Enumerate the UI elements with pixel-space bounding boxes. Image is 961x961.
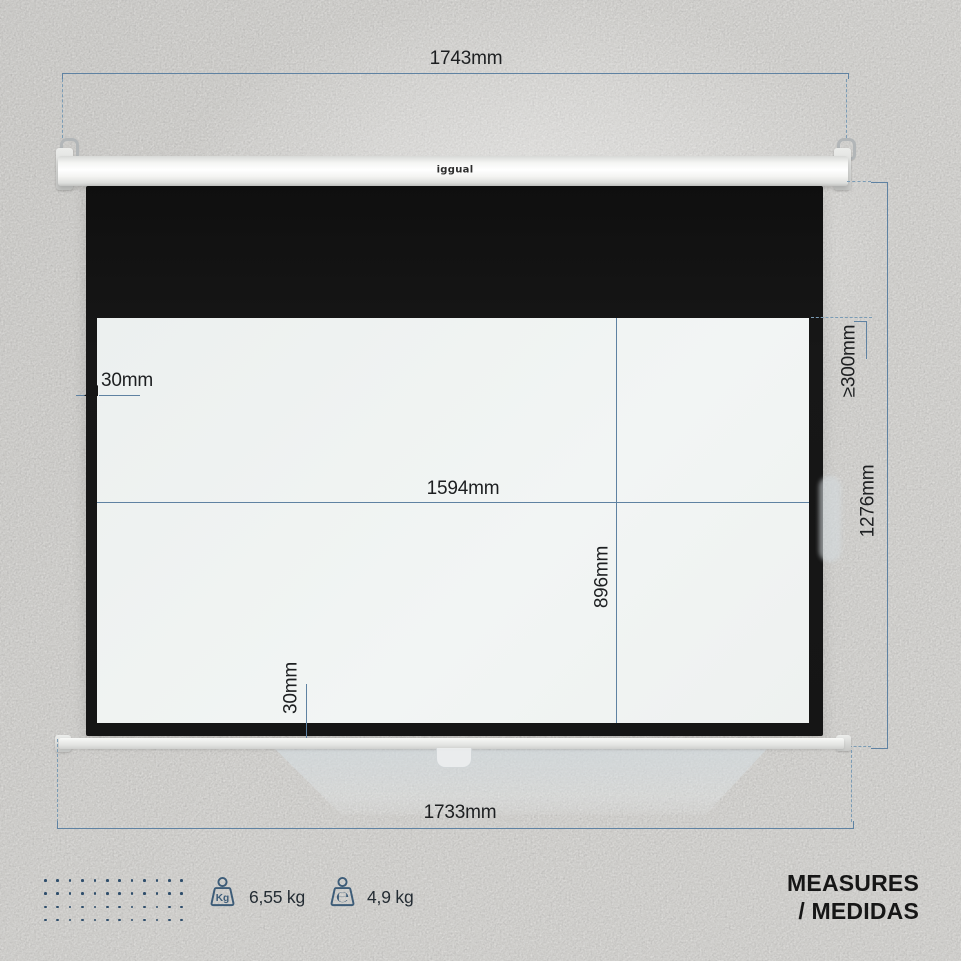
dim-viewing-width-line	[97, 502, 809, 503]
total-weight-value: 6,55 kg	[249, 889, 305, 907]
section-title: MEASURES / MEDIDAS	[640, 869, 919, 925]
wall-shadow-blob	[819, 476, 841, 562]
svg-text:Kg: Kg	[216, 893, 230, 904]
pull-tab	[436, 748, 472, 768]
estimated-weight-icon: ℮	[326, 876, 359, 910]
dim-viewing-height-line	[616, 318, 617, 723]
section-title-es: / MEDIDAS	[640, 897, 919, 925]
product-measurement-diagram: 1743mm iggual 1594mm 896mm 30mm 30mm 127…	[0, 0, 961, 961]
dim-viewing-width-label: 1594mm	[427, 479, 500, 498]
decorative-dot-grid	[44, 874, 193, 927]
brand-logo: iggual	[437, 165, 474, 176]
net-weight-value: 4,9 kg	[367, 889, 413, 907]
dim-min-drop-label: ≥300mm	[840, 325, 859, 398]
section-title-en: MEASURES	[640, 869, 919, 897]
dim-total-height-label: 1276mm	[859, 465, 878, 538]
dim-top-extension-right	[846, 79, 847, 138]
screen-floor-reflection	[265, 749, 777, 815]
dim-total-height-extension-top	[847, 181, 871, 182]
svg-text:℮: ℮	[336, 888, 349, 906]
dim-top-width-label: 1743mm	[430, 49, 503, 68]
screen-viewing-area	[97, 318, 809, 723]
dim-top-extension-left	[62, 79, 63, 138]
dim-bottom-width-label: 1733mm	[424, 803, 497, 822]
dim-viewing-height-label: 896mm	[593, 546, 612, 608]
kg-weight-icon: Kg	[206, 876, 239, 910]
dim-border-side-underline	[99, 395, 140, 396]
dim-border-bottom-label: 30mm	[282, 662, 301, 714]
dim-border-side-label: 30mm	[101, 371, 153, 390]
dim-bottom-extension-right	[851, 750, 852, 822]
dim-top-width-line	[62, 73, 849, 79]
dim-bottom-extension-left	[57, 739, 58, 822]
dim-min-drop-extension	[811, 317, 872, 318]
